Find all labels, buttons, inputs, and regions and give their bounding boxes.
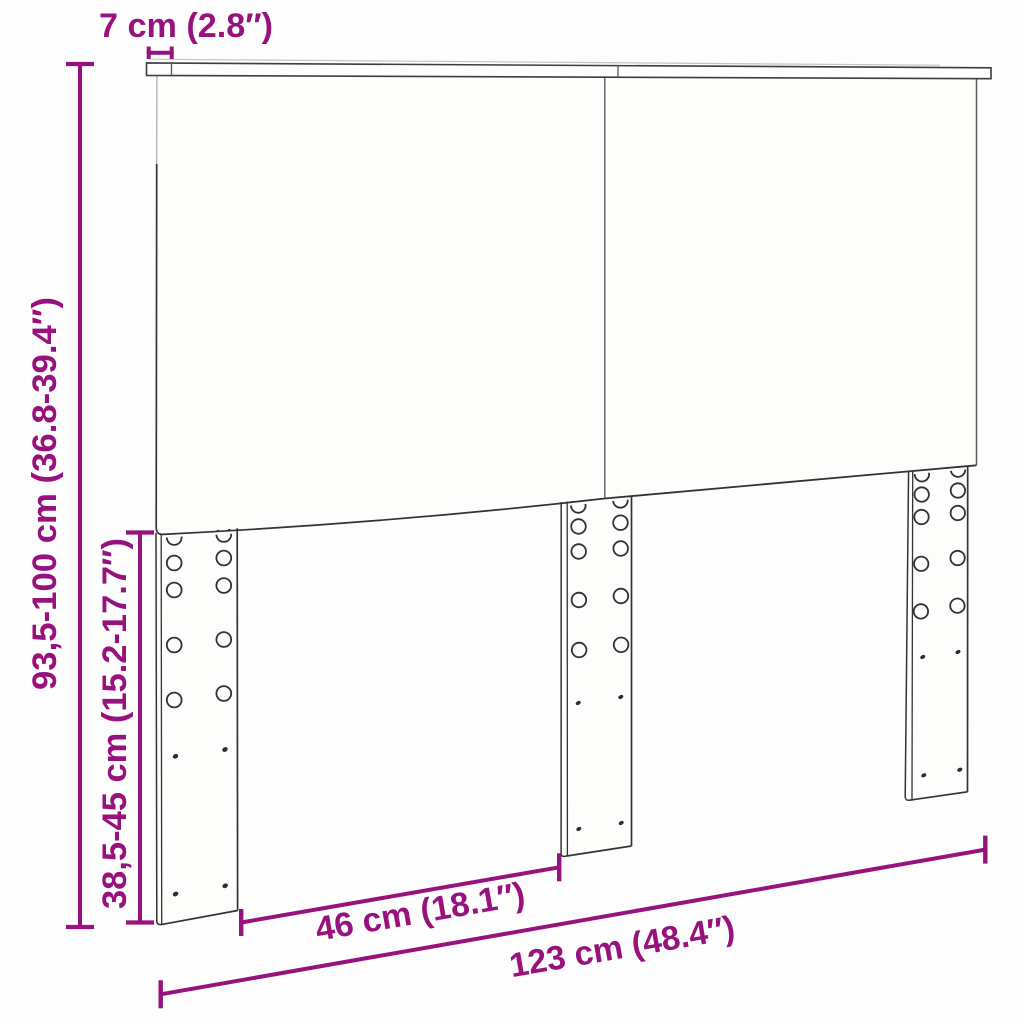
svg-text:93,5-100 cm (36.8-39.4″): 93,5-100 cm (36.8-39.4″) — [26, 297, 64, 690]
svg-text:38,5-45 cm (15.2-17.7″): 38,5-45 cm (15.2-17.7″) — [96, 538, 134, 909]
svg-text:7 cm (2.8″): 7 cm (2.8″) — [99, 7, 273, 45]
